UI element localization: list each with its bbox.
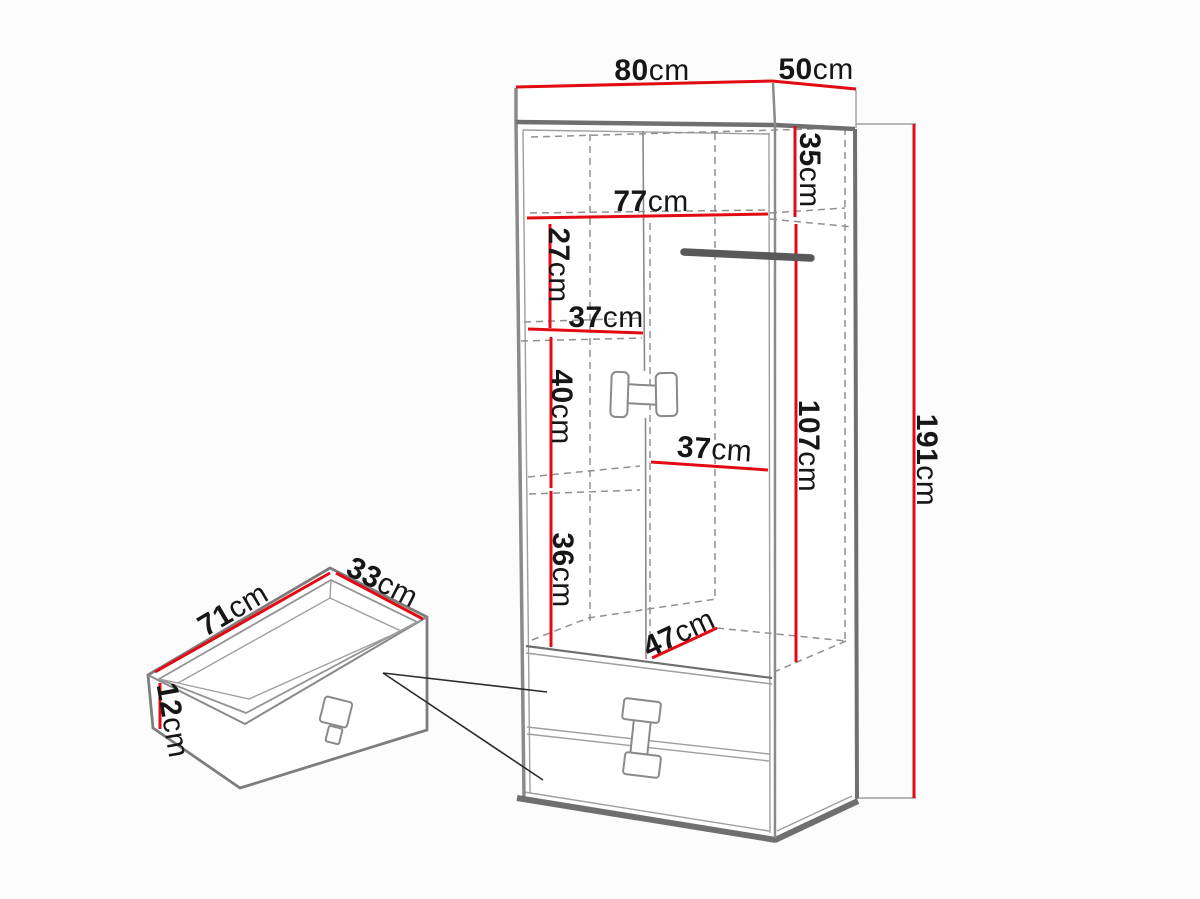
diagram-canvas: 80cm 50cm 35cm 77cm 27cm 37cm 40cm 37cm … (0, 0, 1200, 899)
drawer-handle-bottom-plate (623, 752, 661, 778)
dim-label-height-191: 191cm (910, 414, 943, 507)
dim-label-hanging-height-107: 107cm (792, 400, 825, 493)
drawer-handle-top-plate (622, 698, 661, 723)
dim-label-lower-gap-36: 36cm (546, 532, 579, 607)
dim-label-middle-gap-40: 40cm (545, 369, 578, 444)
drawer-detail-handle-plate (319, 696, 352, 728)
drawer-detail-handle-tab (325, 726, 342, 745)
dim-label-interior-width-77: 77cm (613, 185, 688, 218)
door-handle-bar (626, 384, 659, 405)
door-gap-lower (646, 418, 647, 659)
drawer-corner-back (330, 580, 331, 598)
dim-label-width-80: 80cm (614, 54, 689, 87)
dim-label-upper-gap-27: 27cm (542, 227, 575, 302)
dim-label-depth-50: 50cm (778, 53, 853, 86)
dim-label-hanging-width-37: 37cm (676, 430, 753, 468)
dim-label-shelf-width-37: 37cm (568, 301, 643, 334)
dim-label-top-section-35: 35cm (793, 132, 826, 207)
wardrobe-dimension-diagram: 80cm 50cm 35cm 77cm 27cm 37cm 40cm 37cm … (0, 0, 1200, 899)
inner-right-edge (769, 133, 770, 833)
door-handle-right-plate (656, 373, 678, 416)
top-panel-front-face (516, 82, 775, 125)
door-handle-left-plate (610, 372, 629, 418)
back-right-outer-edge (855, 129, 857, 799)
